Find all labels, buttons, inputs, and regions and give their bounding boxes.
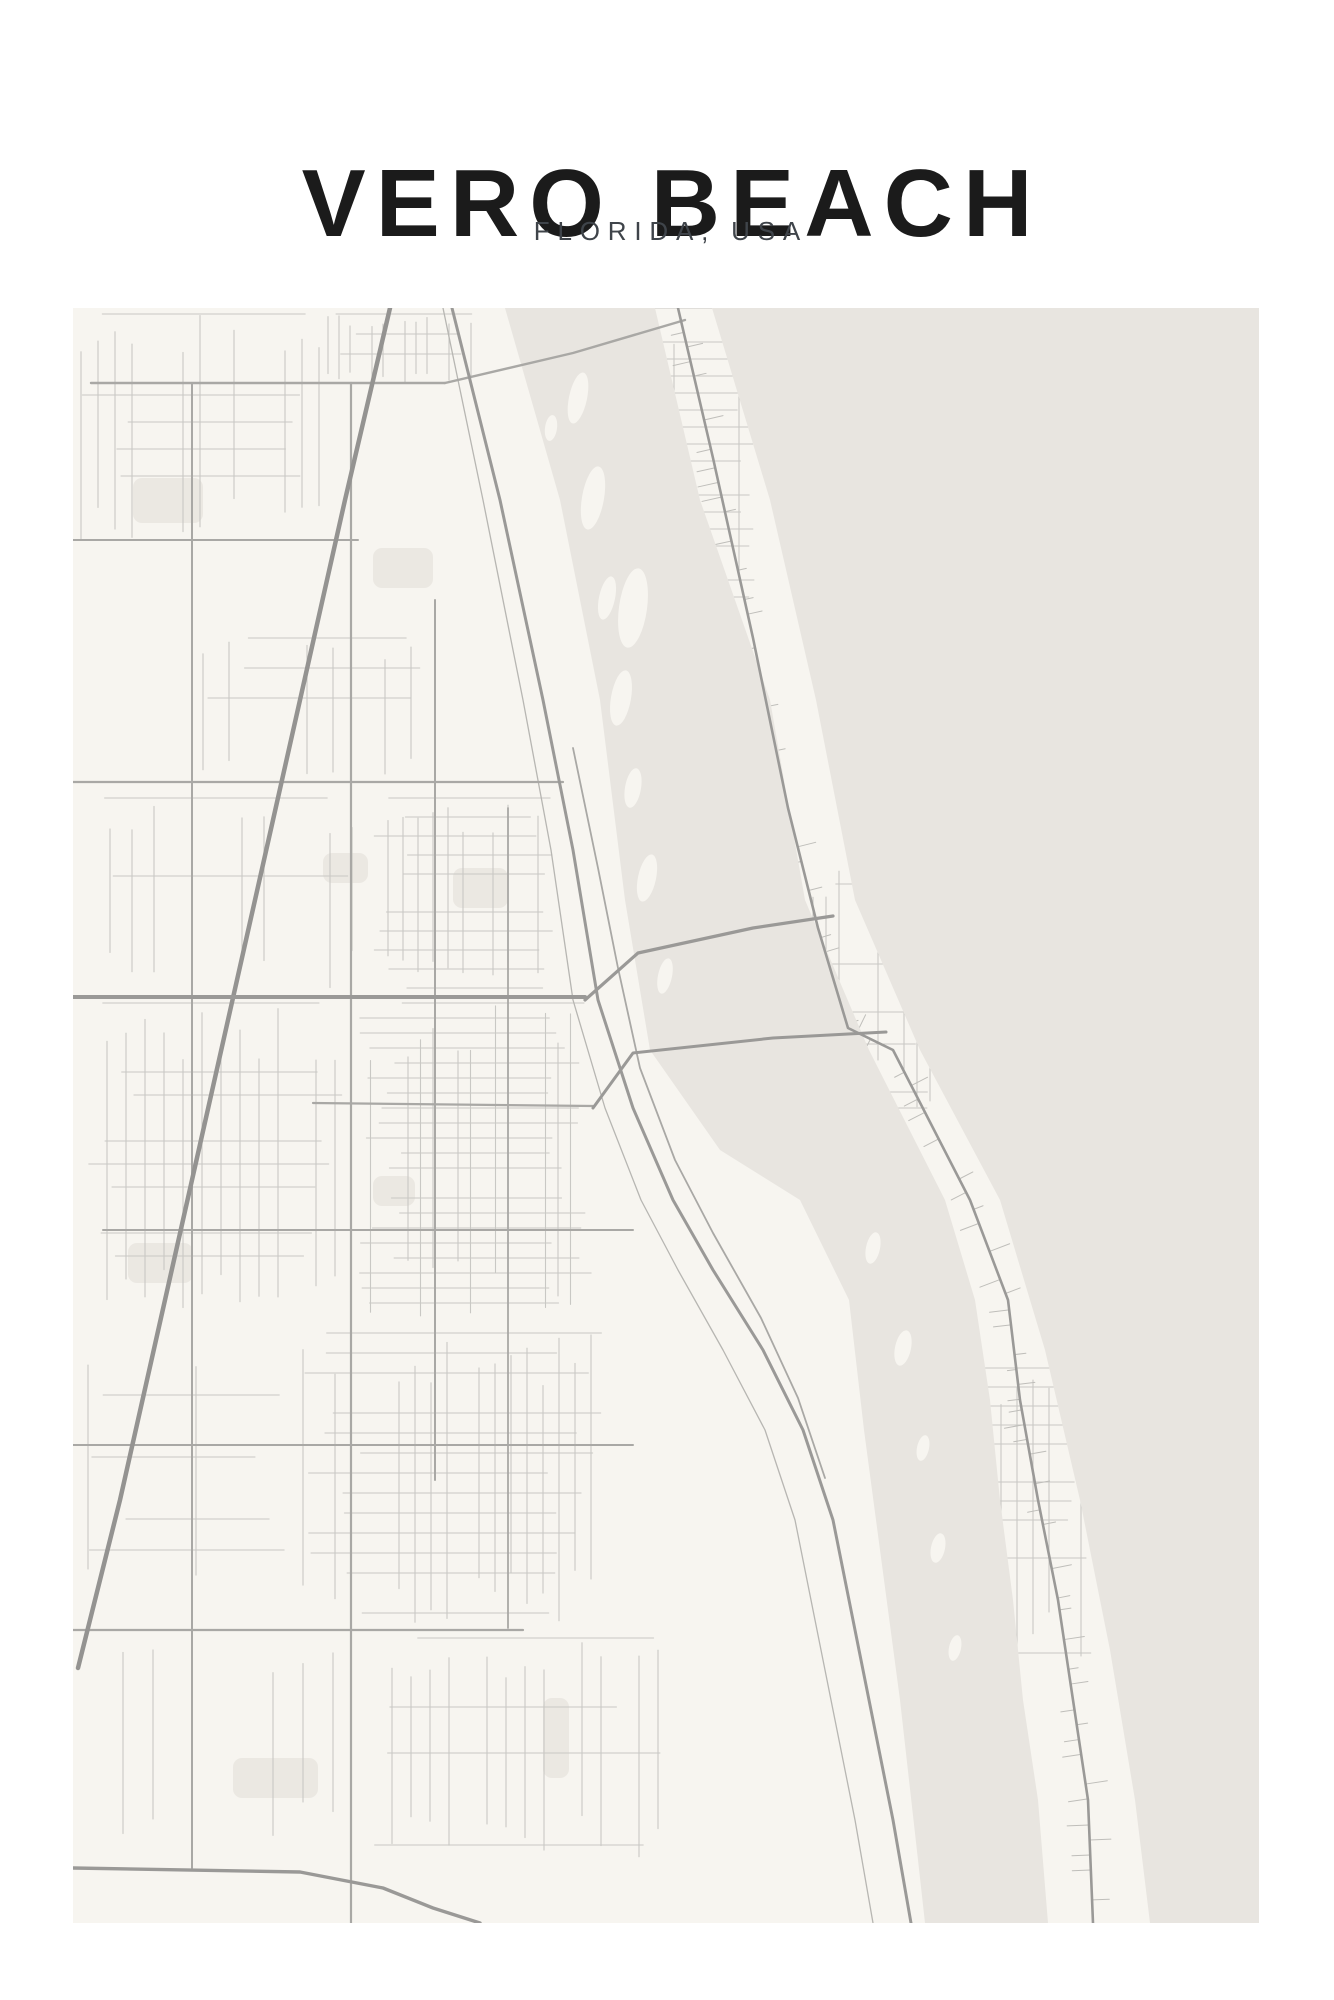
map-svg (73, 308, 1259, 1923)
open-space-patch (373, 1176, 415, 1206)
open-space-patch (373, 548, 433, 588)
open-space-patch (233, 1758, 318, 1798)
city-map (73, 308, 1259, 1923)
open-space-patch (543, 1698, 569, 1778)
poster-subtitle: FLORIDA, USA (0, 218, 1334, 244)
